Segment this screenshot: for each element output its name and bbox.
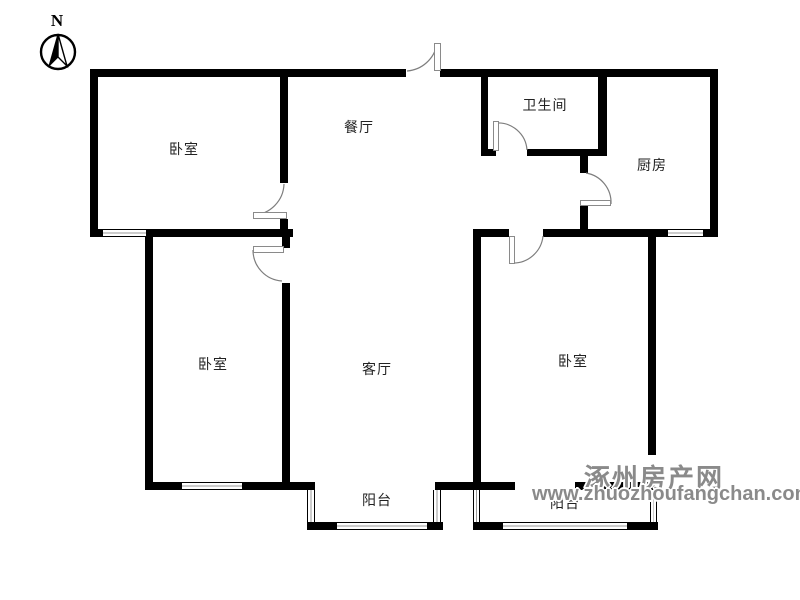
bedroom-right-door-leaf bbox=[509, 236, 515, 264]
floorplan-symbols bbox=[0, 0, 800, 600]
room-label-dining: 餐厅 bbox=[344, 117, 374, 137]
room-label-balcony-middle: 阳台 bbox=[362, 490, 392, 510]
room-label-kitchen: 厨房 bbox=[637, 155, 667, 175]
room-label-bedroom-bottom-left: 卧室 bbox=[198, 354, 228, 374]
bathroom-door-arc bbox=[496, 123, 527, 150]
bedroom-top-left-door-arc bbox=[253, 184, 284, 215]
bedroom-right-door-arc bbox=[512, 236, 543, 263]
entry-door-arc bbox=[407, 44, 437, 71]
bedroom-top-left-door-leaf bbox=[253, 212, 287, 219]
bathroom-door-leaf bbox=[493, 121, 499, 151]
compass-icon bbox=[41, 34, 75, 69]
bedroom-bottom-left-door-leaf bbox=[253, 246, 284, 253]
room-label-bathroom: 卫生间 bbox=[523, 95, 568, 115]
floorplan-canvas: N 卧室 餐厅 卫生间 厨房 卧室 客厅 卧室 阳台 阳台 涿州房产网 www.… bbox=[0, 0, 800, 600]
compass-north-label: N bbox=[51, 11, 63, 31]
room-label-bedroom-bottom-right: 卧室 bbox=[558, 351, 588, 371]
bedroom-bottom-left-door-arc bbox=[253, 250, 282, 281]
kitchen-door-leaf bbox=[580, 200, 611, 206]
room-label-living: 客厅 bbox=[362, 359, 392, 379]
room-label-bedroom-top-left: 卧室 bbox=[169, 139, 199, 159]
watermark-url: www.zhuozhoufangchan.com bbox=[532, 483, 800, 506]
entry-door-leaf bbox=[434, 43, 441, 71]
